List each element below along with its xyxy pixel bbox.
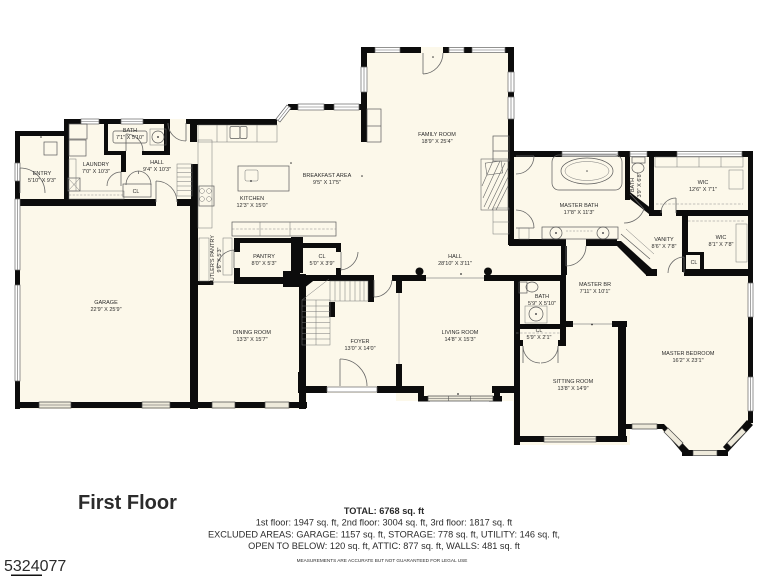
svg-text:13'8" X 14'9": 13'8" X 14'9" (557, 386, 588, 392)
svg-text:8'6" X 7'8": 8'6" X 7'8" (652, 244, 677, 250)
svg-text:8'0" X 5'3": 8'0" X 5'3" (252, 261, 277, 267)
svg-text:14'8" X 15'3": 14'8" X 15'3" (444, 337, 475, 343)
svg-text:LIVING ROOM: LIVING ROOM (442, 330, 479, 336)
svg-text:CL: CL (133, 189, 140, 195)
svg-text:22'9" X 25'9": 22'9" X 25'9" (90, 307, 121, 313)
svg-text:VANITY: VANITY (654, 237, 674, 243)
svg-text:First Floor: First Floor (78, 492, 177, 514)
svg-text:CL: CL (318, 254, 325, 260)
svg-text:13'0" X 14'0": 13'0" X 14'0" (344, 346, 375, 352)
svg-text:DINING ROOM: DINING ROOM (233, 330, 271, 336)
svg-text:FAMILY ROOM: FAMILY ROOM (418, 132, 456, 138)
svg-text:5'9" X 2'1": 5'9" X 2'1" (527, 335, 552, 341)
svg-text:LAUNDRY: LAUNDRY (83, 162, 110, 168)
svg-text:CL: CL (536, 328, 543, 334)
svg-text:MASTER BATH: MASTER BATH (560, 203, 599, 209)
svg-text:7'11" X 10'1": 7'11" X 10'1" (580, 289, 611, 295)
svg-text:5324077: 5324077 (4, 558, 66, 575)
svg-text:5'9" X 5'10": 5'9" X 5'10" (528, 301, 556, 307)
svg-text:HALL: HALL (448, 254, 462, 260)
svg-text:SITTING ROOM: SITTING ROOM (553, 379, 594, 385)
svg-text:KITCHEN: KITCHEN (240, 196, 264, 202)
svg-text:BATH: BATH (123, 128, 137, 134)
svg-text:FOYER: FOYER (351, 339, 370, 345)
svg-text:EXCLUDED AREAS: GARAGE: 1157 s: EXCLUDED AREAS: GARAGE: 1157 sq. ft, STO… (208, 530, 560, 540)
svg-text:ENTRY: ENTRY (33, 171, 52, 177)
svg-text:MASTER BR: MASTER BR (579, 282, 611, 288)
svg-text:5'10" X 9'3": 5'10" X 9'3" (28, 178, 56, 184)
svg-text:12'6" X 7'1": 12'6" X 7'1" (689, 187, 717, 193)
svg-text:WIC: WIC (716, 235, 727, 241)
svg-text:TOTAL: 6768 sq. ft: TOTAL: 6768 sq. ft (344, 506, 424, 516)
svg-text:9'5" X 17'5": 9'5" X 17'5" (313, 180, 341, 186)
svg-text:7'0" X 10'3": 7'0" X 10'3" (82, 169, 110, 175)
svg-text:12'3" X 15'0": 12'3" X 15'0" (236, 203, 267, 209)
svg-text:9'4" X 10'3": 9'4" X 10'3" (143, 167, 171, 173)
svg-text:18'9" X 25'4": 18'9" X 25'4" (421, 139, 452, 145)
svg-text:8'1" X 7'8": 8'1" X 7'8" (709, 242, 734, 248)
svg-text:GARAGE: GARAGE (94, 300, 118, 306)
svg-text:OPEN TO BELOW: 120 sq. ft, ATT: OPEN TO BELOW: 120 sq. ft, ATTIC: 877 sq… (248, 541, 520, 551)
svg-text:BREAKFAST AREA: BREAKFAST AREA (303, 173, 352, 179)
svg-text:17'8" X 11'3": 17'8" X 11'3" (564, 210, 595, 216)
svg-text:1st floor: 1947 sq. ft, 2nd fl: 1st floor: 1947 sq. ft, 2nd floor: 3004 … (256, 518, 513, 528)
svg-text:HALL: HALL (150, 160, 164, 166)
svg-text:5'0" X 3'9": 5'0" X 3'9" (310, 261, 335, 267)
svg-text:CL: CL (691, 260, 698, 266)
svg-text:16'2" X 23'1": 16'2" X 23'1" (672, 358, 703, 364)
svg-text:BATH: BATH (535, 294, 549, 300)
svg-text:WIC: WIC (698, 180, 709, 186)
svg-text:MEASUREMENTS ARE ACCURATE BUT: MEASUREMENTS ARE ACCURATE BUT NOT GUARAN… (297, 558, 468, 563)
svg-text:MASTER BEDROOM: MASTER BEDROOM (662, 351, 715, 357)
svg-text:13'3" X 15'7": 13'3" X 15'7" (236, 337, 267, 343)
svg-text:28'10" X 3'11": 28'10" X 3'11" (438, 261, 472, 267)
svg-text:PANTRY: PANTRY (253, 254, 275, 260)
svg-text:7'1" X 5'10": 7'1" X 5'10" (116, 135, 144, 141)
